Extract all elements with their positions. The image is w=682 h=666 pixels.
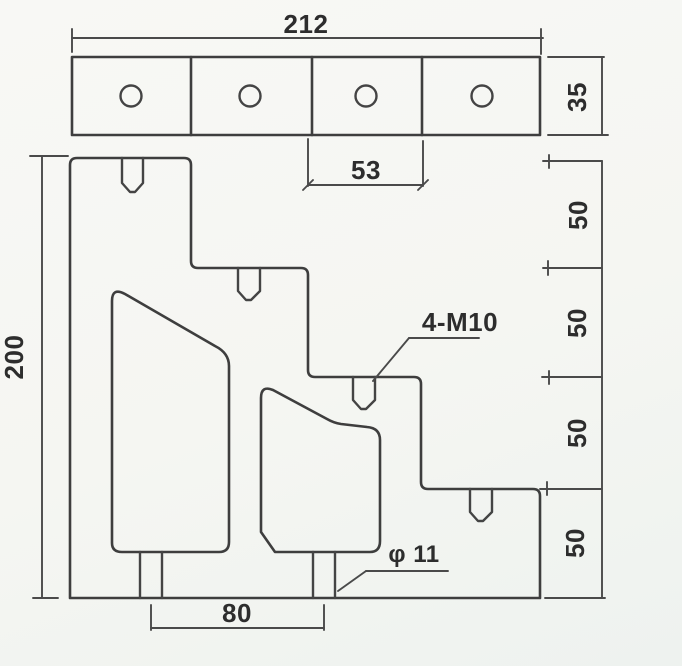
top-view: [72, 57, 540, 135]
bottom-slot-right: [313, 552, 335, 598]
dim-label-212: 212: [284, 9, 329, 39]
dim-bar-height: 35: [548, 57, 608, 135]
dim-label-80: 80: [222, 598, 252, 628]
front-view: [70, 158, 540, 598]
dim-label-50-1: 50: [563, 200, 593, 230]
bottom-slot-left: [140, 552, 162, 598]
dim-label-50-3: 50: [562, 418, 592, 448]
dim-label-53: 53: [351, 155, 381, 185]
tapped-hole-4: [470, 489, 492, 521]
bolt-hole: [356, 86, 377, 107]
callout-label-phi-11: φ 11: [388, 541, 439, 568]
dim-label-35: 35: [562, 82, 592, 112]
dim-total-width: 212: [72, 9, 543, 54]
leader-line: [373, 338, 409, 381]
dim-slot-spacing: 80: [151, 598, 324, 630]
pocket-cutout-right: [261, 389, 380, 552]
engineering-drawing: 212 35 53: [0, 0, 682, 666]
tapped-hole-2: [238, 268, 260, 300]
dim-label-200: 200: [0, 335, 29, 380]
dim-label-50-2: 50: [562, 308, 592, 338]
dim-overall-height: 200: [0, 156, 68, 598]
tapped-hole-1: [122, 158, 143, 192]
stepped-block-outline: [70, 158, 540, 598]
dim-label-50-4: 50: [560, 528, 590, 558]
dim-step-heights: 50 50 50 50: [540, 155, 605, 598]
callout-thread: 4-M10: [373, 307, 498, 381]
tapped-hole-3: [353, 377, 375, 409]
bolt-hole: [240, 86, 261, 107]
callout-slot-diameter: φ 11: [338, 541, 448, 591]
pocket-cutout-left: [112, 292, 229, 552]
technical-drawing-page: 212 35 53: [0, 0, 682, 666]
callout-label-4-m10: 4-M10: [422, 307, 498, 337]
leader-line: [338, 571, 366, 591]
bolt-hole: [121, 86, 142, 107]
bolt-hole: [472, 86, 493, 107]
dim-hole-pitch: 53: [303, 139, 428, 190]
